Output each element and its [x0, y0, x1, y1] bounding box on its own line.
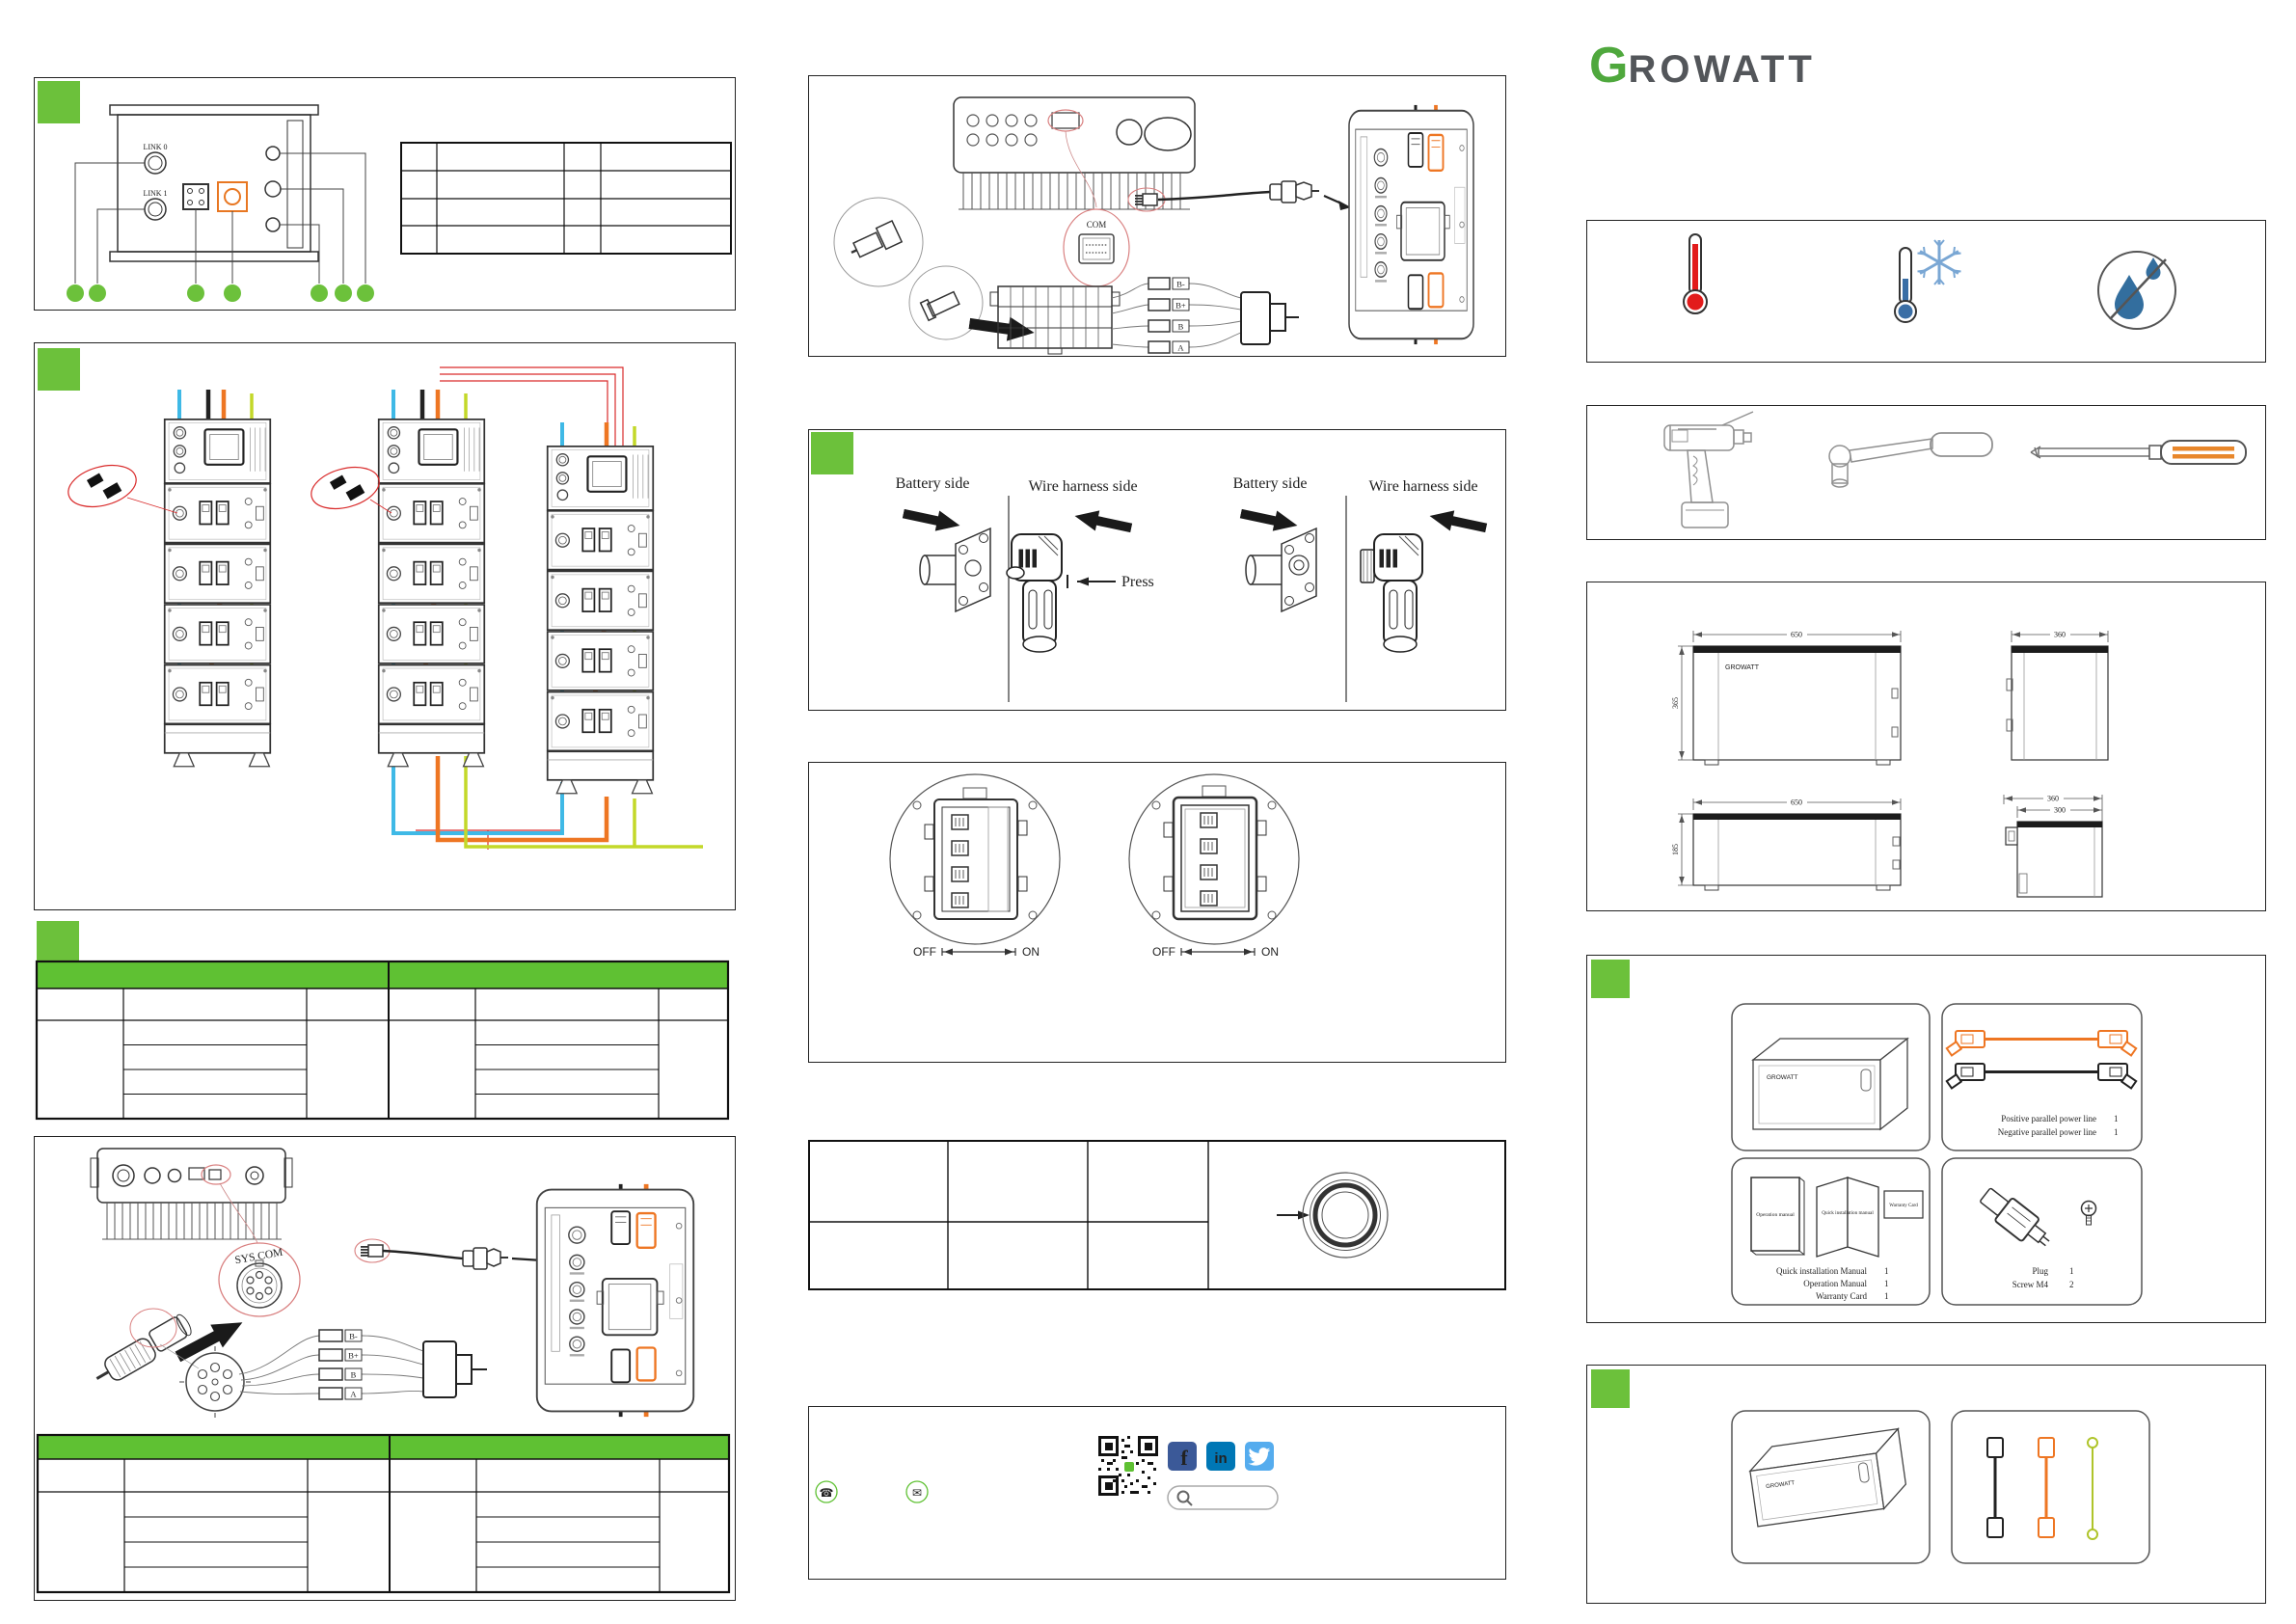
leader-lines: [75, 153, 365, 284]
svg-text:1: 1: [1884, 1279, 1889, 1288]
panel-environment-icons: [1586, 220, 2266, 363]
battery-module-rear: [537, 1184, 693, 1417]
card-documents: Operation manual Quick installation manu…: [1732, 1158, 1930, 1305]
linkedin-icon[interactable]: in: [1206, 1442, 1235, 1471]
manual-page: LINK 0 LINK 1: [0, 0, 2296, 1624]
card-plug-screws: Plug 1 Screw M4 2: [1942, 1158, 2142, 1305]
svg-text:365: 365: [1671, 697, 1680, 709]
svg-text:Negative parallel power line: Negative parallel power line: [1998, 1127, 2096, 1137]
svg-text:360: 360: [2054, 631, 2066, 639]
wiring-table-2: [38, 1435, 729, 1592]
svg-text:Quick installation Manual: Quick installation Manual: [1776, 1266, 1867, 1276]
svg-text:Screw M4: Screw M4: [2012, 1280, 2049, 1289]
svg-text:B: B: [1178, 322, 1184, 332]
syscom-port-callout: [202, 1165, 230, 1184]
svg-text:GROWATT: GROWATT: [1767, 1074, 1798, 1081]
breaker-circle-on: [1129, 774, 1299, 944]
leader-line: [1066, 131, 1096, 207]
step-badge: [37, 921, 79, 963]
connector-detail-circles: [834, 198, 983, 339]
svg-text:Positive parallel power line: Positive parallel power line: [2001, 1114, 2096, 1123]
panel-dimensions: 650 GROWATT 365 360 650: [1586, 582, 2266, 911]
arrow-right: [902, 503, 962, 536]
panel-packing-2: GROWATT: [1586, 1365, 2266, 1604]
battery-module-rear: [1349, 105, 1473, 344]
callout-dots: [67, 284, 374, 302]
battery-side-label: Battery side: [896, 475, 970, 492]
arrow-right: [1239, 503, 1300, 536]
svg-text:B+: B+: [348, 1351, 359, 1361]
card-battery-box-2: GROWATT: [1732, 1411, 1930, 1563]
spec-table: [401, 143, 731, 254]
mail-glyph: ✉: [912, 1486, 922, 1500]
svg-text:1: 1: [2114, 1114, 2119, 1123]
dim-module-side: 360 300: [2004, 793, 2102, 897]
svg-text:1: 1: [2069, 1266, 2074, 1276]
no-moisture-icon: [2098, 252, 2175, 329]
panel-breaker: OFF ON OFF ON: [808, 762, 1506, 1063]
battery-side-label: Battery side: [1233, 475, 1308, 492]
svg-text:B-: B-: [1176, 280, 1185, 289]
svg-text:GROWATT: GROWATT: [1725, 664, 1760, 671]
svg-text:Quick installation manual: Quick installation manual: [1822, 1210, 1874, 1216]
svg-text:COM: COM: [1087, 220, 1107, 230]
card-cables-2: [1952, 1411, 2149, 1563]
inverter-bottom-view: [91, 1149, 292, 1239]
svg-text:in: in: [1214, 1450, 1227, 1467]
press-callout: Press: [1067, 574, 1154, 590]
svg-text:OFF: OFF: [913, 945, 936, 959]
card-battery-box: GROWATT: [1732, 1004, 1930, 1150]
led-table: [809, 1141, 1505, 1289]
com-detail-circle: COM: [1064, 209, 1129, 286]
panel-step1-device: LINK 0 LINK 1: [34, 77, 736, 311]
svg-text:Operation manual: Operation manual: [1756, 1212, 1795, 1218]
harness-wires: [239, 1336, 423, 1394]
wiring-table: [37, 961, 728, 1119]
svg-text:A: A: [350, 1390, 357, 1399]
panel-step3-table: [34, 916, 736, 1123]
panel-button-table: [808, 1140, 1506, 1290]
svg-text:185: 185: [1671, 844, 1680, 855]
svg-text:2: 2: [2069, 1280, 2074, 1289]
svg-text:B: B: [351, 1370, 357, 1380]
battery-tower-1: [165, 420, 271, 767]
harness-plugs: B- B+ B A: [319, 1330, 487, 1399]
link0-label: LINK 0: [143, 143, 167, 151]
hot-thermometer-icon: [1684, 234, 1707, 313]
card-parallel-cables: Positive parallel power line 1 Negative …: [1942, 1004, 2142, 1150]
arrow-left: [1072, 505, 1133, 538]
svg-text:B+: B+: [1175, 301, 1186, 311]
qr-code: [1098, 1436, 1157, 1495]
link-device-drawing: [110, 105, 318, 261]
facebook-icon[interactable]: f: [1168, 1442, 1197, 1471]
panel-tools: [1586, 405, 2266, 540]
phone-glyph: ☎: [820, 1486, 834, 1500]
wire-harness-label: Wire harness side: [1028, 478, 1137, 495]
syscom-detail-circle: SYS COM: [219, 1243, 300, 1316]
step-badge: [38, 348, 80, 391]
off-on-label-left: OFF ON: [913, 945, 1040, 959]
svg-text:Warranty Card: Warranty Card: [1889, 1204, 1918, 1208]
svg-text:A: A: [1177, 343, 1184, 353]
harness-wires: [1112, 284, 1241, 347]
twitter-icon[interactable]: [1245, 1442, 1274, 1471]
svg-text:B-: B-: [349, 1332, 358, 1341]
wrench-icon: [1829, 433, 1992, 487]
svg-text:1: 1: [1884, 1291, 1889, 1301]
dim-side-view: 360: [2007, 629, 2108, 760]
pin-diagram: [179, 1346, 251, 1418]
harness-plugs: B- B+ B A: [1148, 278, 1299, 353]
dim-front-view: 650 GROWATT 365: [1671, 629, 1901, 765]
growatt-logo: GROWATT: [1589, 37, 1816, 95]
inverter-top-view: [954, 97, 1195, 209]
svg-text:f: f: [1180, 1446, 1188, 1470]
battery-tower-2: [379, 420, 485, 767]
panel-step2-towers: [34, 342, 736, 910]
drill-icon: [1664, 412, 1753, 528]
arrow-left: [1427, 505, 1488, 538]
panel-packing-list: GROWATT Positive parallel power line 1 N…: [1586, 955, 2266, 1323]
svg-text:Plug: Plug: [2032, 1266, 2048, 1276]
screwdriver-icon: [2031, 441, 2246, 464]
flange-socket-right: [1246, 528, 1316, 611]
svg-text:Warranty Card: Warranty Card: [1816, 1291, 1868, 1301]
dim-module-front: 650 185: [1671, 797, 1901, 890]
svg-text:ON: ON: [1022, 945, 1040, 959]
breaker-circle-off: [890, 774, 1060, 944]
step-badge: [1591, 960, 1630, 998]
cold-thermometer-icon: [1895, 248, 1916, 322]
panel-press-connectors: Battery side Wire harness side Battery s…: [808, 429, 1506, 711]
svg-text:1: 1: [2114, 1127, 2119, 1137]
step-badge: [1591, 1369, 1630, 1408]
svg-text:OFF: OFF: [1152, 945, 1175, 959]
comm-cable: [1128, 181, 1351, 211]
svg-text:ON: ON: [1261, 945, 1279, 959]
step-badge: [811, 432, 853, 474]
led-ring-button: [1277, 1173, 1388, 1258]
logo-g: G: [1589, 38, 1628, 94]
flange-socket-left: [920, 528, 990, 611]
svg-text:Operation Manual: Operation Manual: [1803, 1279, 1867, 1288]
harness-connector-right: [1361, 534, 1422, 652]
connector-callout-1: [64, 458, 177, 513]
link1-label: LINK 1: [143, 189, 167, 198]
svg-text:1: 1: [1884, 1266, 1889, 1276]
svg-text:650: 650: [1791, 631, 1802, 639]
svg-text:650: 650: [1791, 798, 1802, 807]
svg-text:360: 360: [2047, 795, 2059, 803]
wire-harness-label: Wire harness side: [1368, 478, 1477, 495]
panel-com-wiring: COM B- B+ B: [808, 75, 1506, 357]
harness-connector-left: [1007, 534, 1062, 652]
snowflake-icon: [1918, 240, 1961, 284]
step-badge: [38, 81, 80, 123]
panel-contact: ☎ ✉ f in: [808, 1406, 1506, 1580]
svg-text:300: 300: [2054, 806, 2066, 815]
search-input[interactable]: [1192, 1488, 1279, 1507]
off-on-label-right: OFF ON: [1152, 945, 1279, 959]
svg-text:Press: Press: [1121, 574, 1154, 590]
battery-tower-3: [548, 447, 654, 794]
panel-syscom-wiring: SYS COM: [34, 1136, 736, 1601]
logo-rest: ROWATT: [1628, 48, 1815, 91]
